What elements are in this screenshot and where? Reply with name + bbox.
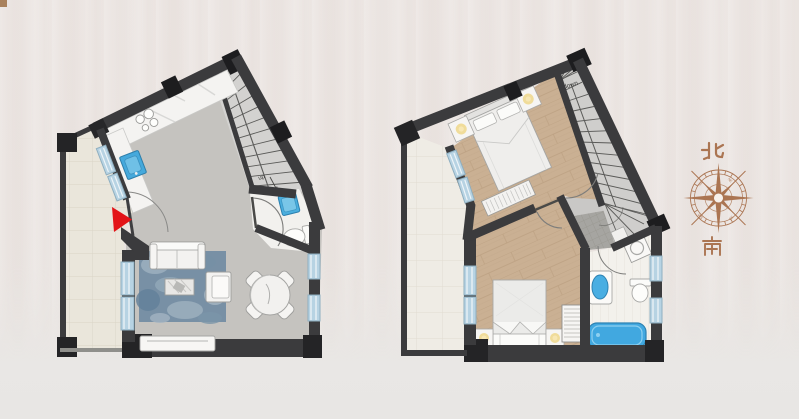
svg-text:WS: WS — [697, 213, 704, 220]
svg-text:SE: SE — [728, 215, 735, 222]
svg-text:NW: NW — [697, 180, 704, 187]
